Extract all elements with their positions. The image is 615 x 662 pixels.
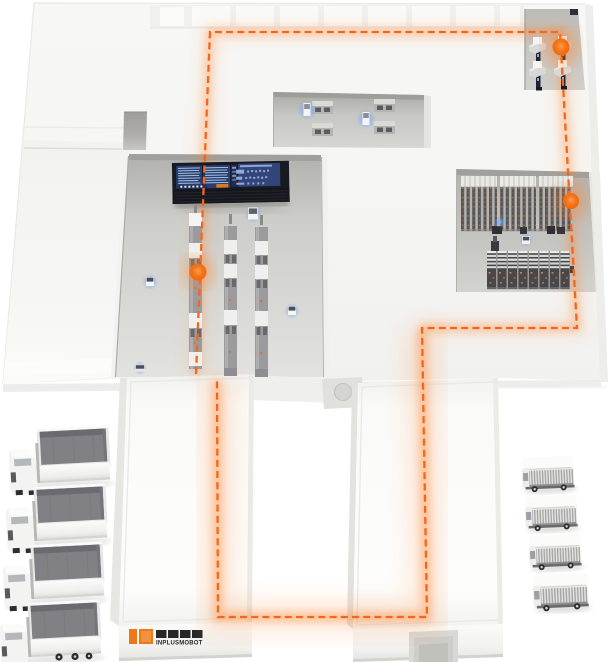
svg-text:INPLUSMOBOT: INPLUSMOBOT	[156, 641, 203, 647]
